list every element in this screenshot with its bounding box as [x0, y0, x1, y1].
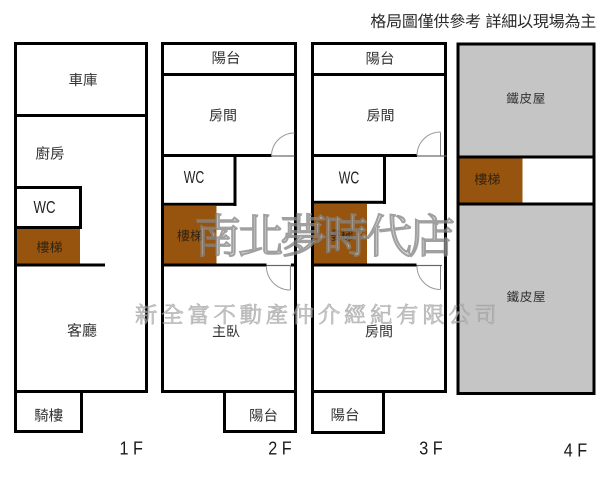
svg-text:4 F: 4 F: [564, 440, 587, 461]
svg-text:3 F: 3 F: [419, 438, 442, 459]
svg-text:WC: WC: [34, 197, 56, 217]
svg-text:WC: WC: [339, 168, 360, 188]
svg-text:2 F: 2 F: [268, 438, 291, 459]
svg-text:WC: WC: [184, 167, 205, 187]
svg-text:1 F: 1 F: [120, 438, 143, 459]
